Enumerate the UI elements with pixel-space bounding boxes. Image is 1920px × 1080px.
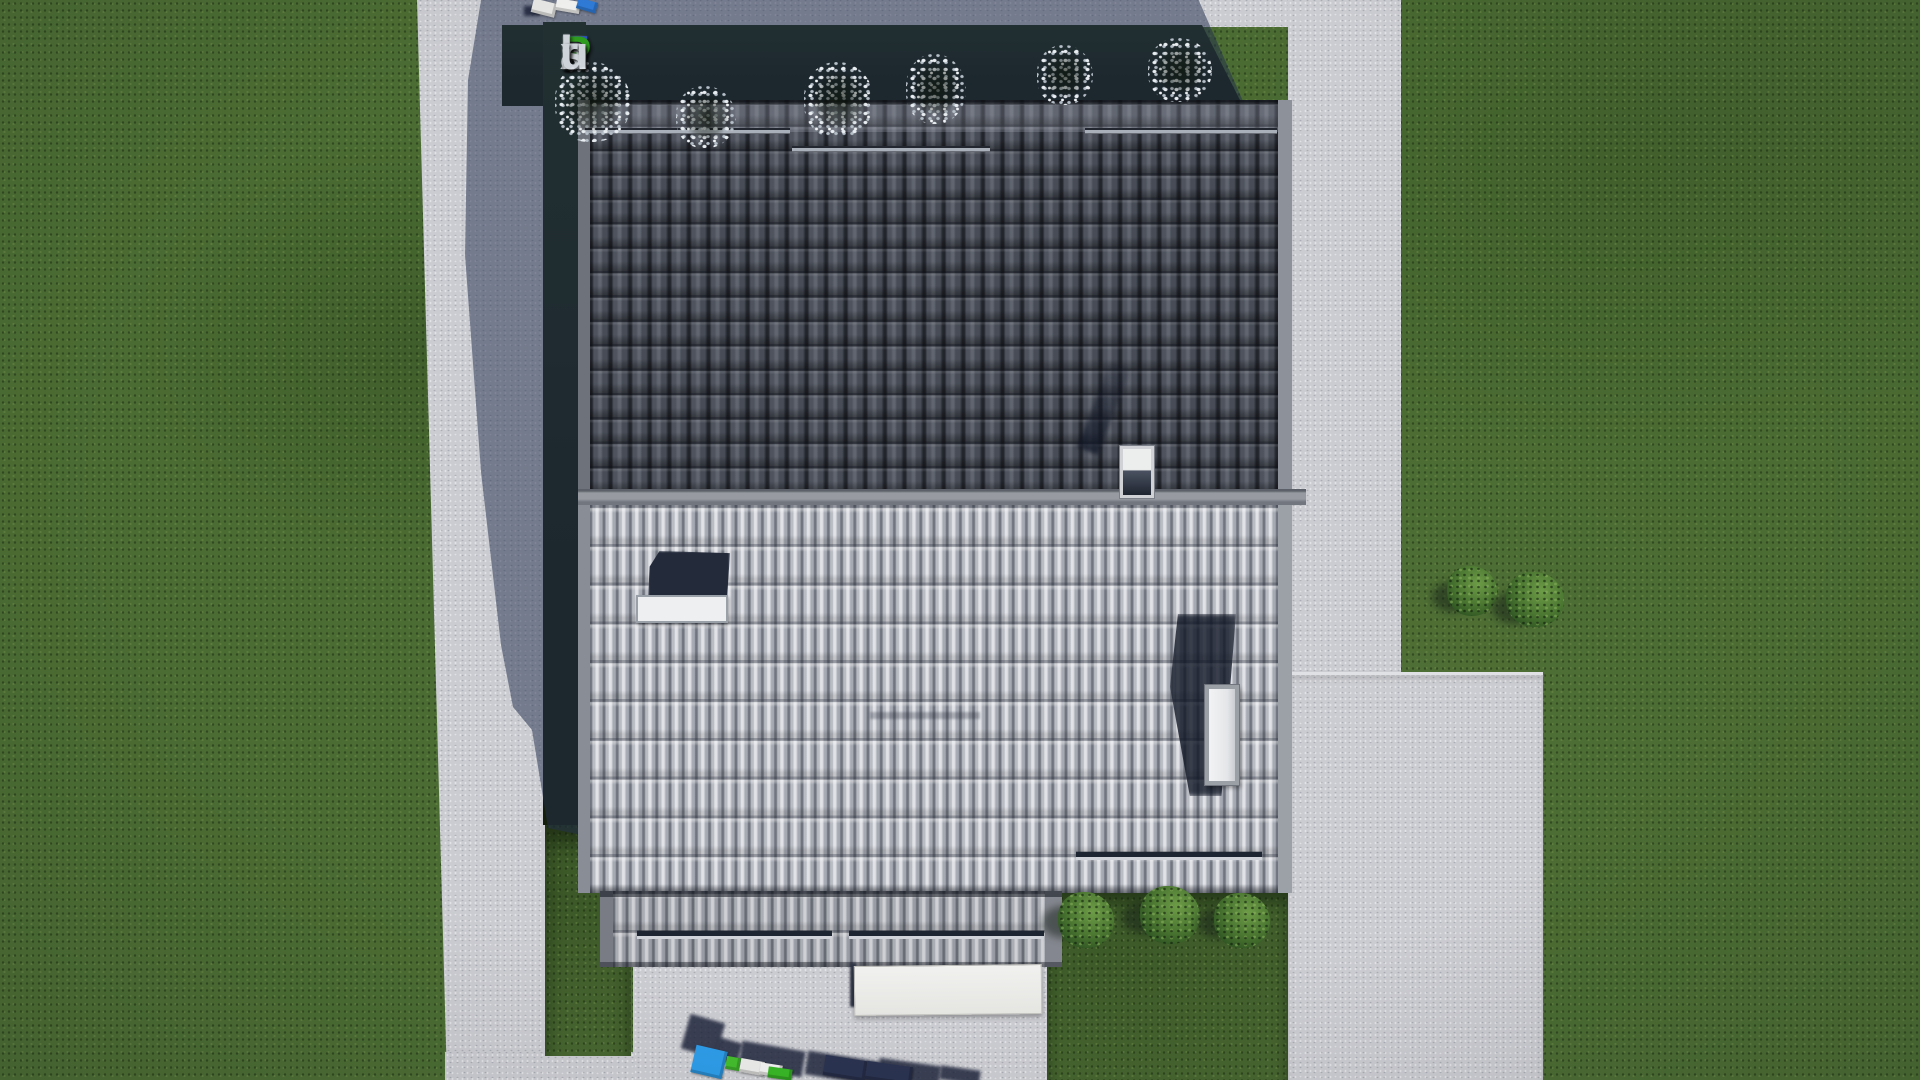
aerial-site-render: FixPlans.ru (0, 0, 1920, 1080)
shrub (1140, 886, 1200, 944)
watermark-3d-bottom (640, 1000, 1060, 1080)
shrub (1447, 566, 1497, 616)
flowering-bush (676, 86, 736, 148)
watermark-text: FixPlans.ru (560, 27, 880, 81)
walkway-right (1288, 0, 1401, 676)
shrub (1058, 892, 1114, 948)
roof-lower-snow-rail (1076, 851, 1262, 860)
shrub (1506, 572, 1564, 627)
watermark-3d-shadow (939, 1065, 981, 1080)
flowering-bush (906, 54, 966, 124)
watermark-3d-top (520, 0, 630, 26)
skylight-lower-frame (636, 595, 728, 623)
walkway-bottom-leg (445, 1052, 635, 1080)
snow-guard-middle (792, 146, 990, 152)
patio-right (1288, 672, 1543, 1080)
porch-roof-gap-line (600, 891, 1062, 897)
roof-lower-faint-band (870, 712, 980, 719)
porch-snow-rail-right (849, 930, 1044, 939)
watermark-3d-block-green (767, 1066, 792, 1080)
chimney (1205, 685, 1239, 785)
watermark-letter: u (560, 27, 591, 79)
roof-ridge (578, 489, 1306, 505)
watermark-3d-block-blue (690, 1045, 727, 1079)
flowering-bush (1037, 45, 1093, 105)
roof-upper-dark (578, 100, 1292, 497)
skylight-upper (1120, 446, 1154, 498)
porch-snow-rail-left (637, 930, 832, 939)
porch-roof (600, 891, 1062, 967)
snow-guard-right (1085, 128, 1277, 134)
flowering-bush (1148, 38, 1212, 102)
shrub (1214, 893, 1270, 948)
